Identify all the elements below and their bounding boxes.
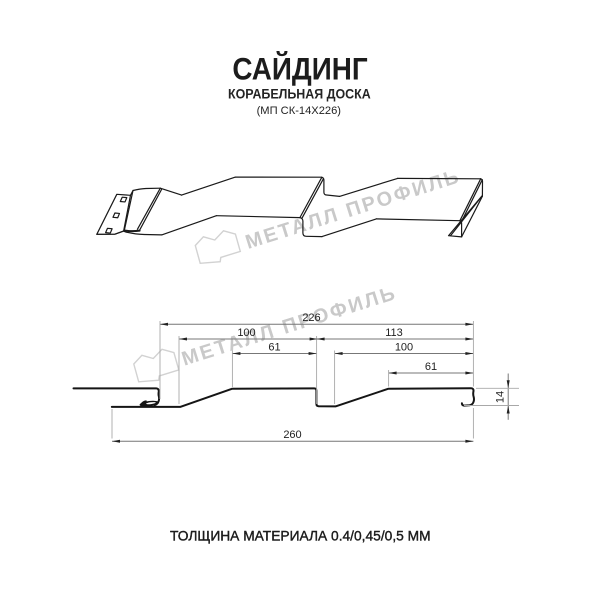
svg-text:61: 61: [425, 361, 437, 373]
svg-text:(МП СК-14Х226): (МП СК-14Х226): [257, 105, 342, 117]
svg-text:61: 61: [268, 341, 280, 353]
svg-text:100: 100: [237, 327, 255, 339]
svg-text:226: 226: [302, 312, 320, 324]
svg-text:КОРАБЕЛЬНАЯ ДОСКА: КОРАБЕЛЬНАЯ ДОСКА: [228, 87, 371, 102]
svg-text:14: 14: [495, 391, 507, 403]
svg-text:260: 260: [283, 429, 301, 441]
svg-text:113: 113: [385, 327, 403, 339]
svg-text:МЕТАЛЛ ПРОФИЛЬ: МЕТАЛЛ ПРОФИЛЬ: [179, 282, 400, 370]
svg-text:САЙДИНГ: САЙДИНГ: [232, 51, 367, 87]
svg-text:100: 100: [395, 341, 413, 353]
svg-text:ТОЛЩИНА МАТЕРИАЛА 0.4/0,45/0,5: ТОЛЩИНА МАТЕРИАЛА 0.4/0,45/0,5 ММ: [170, 527, 431, 543]
